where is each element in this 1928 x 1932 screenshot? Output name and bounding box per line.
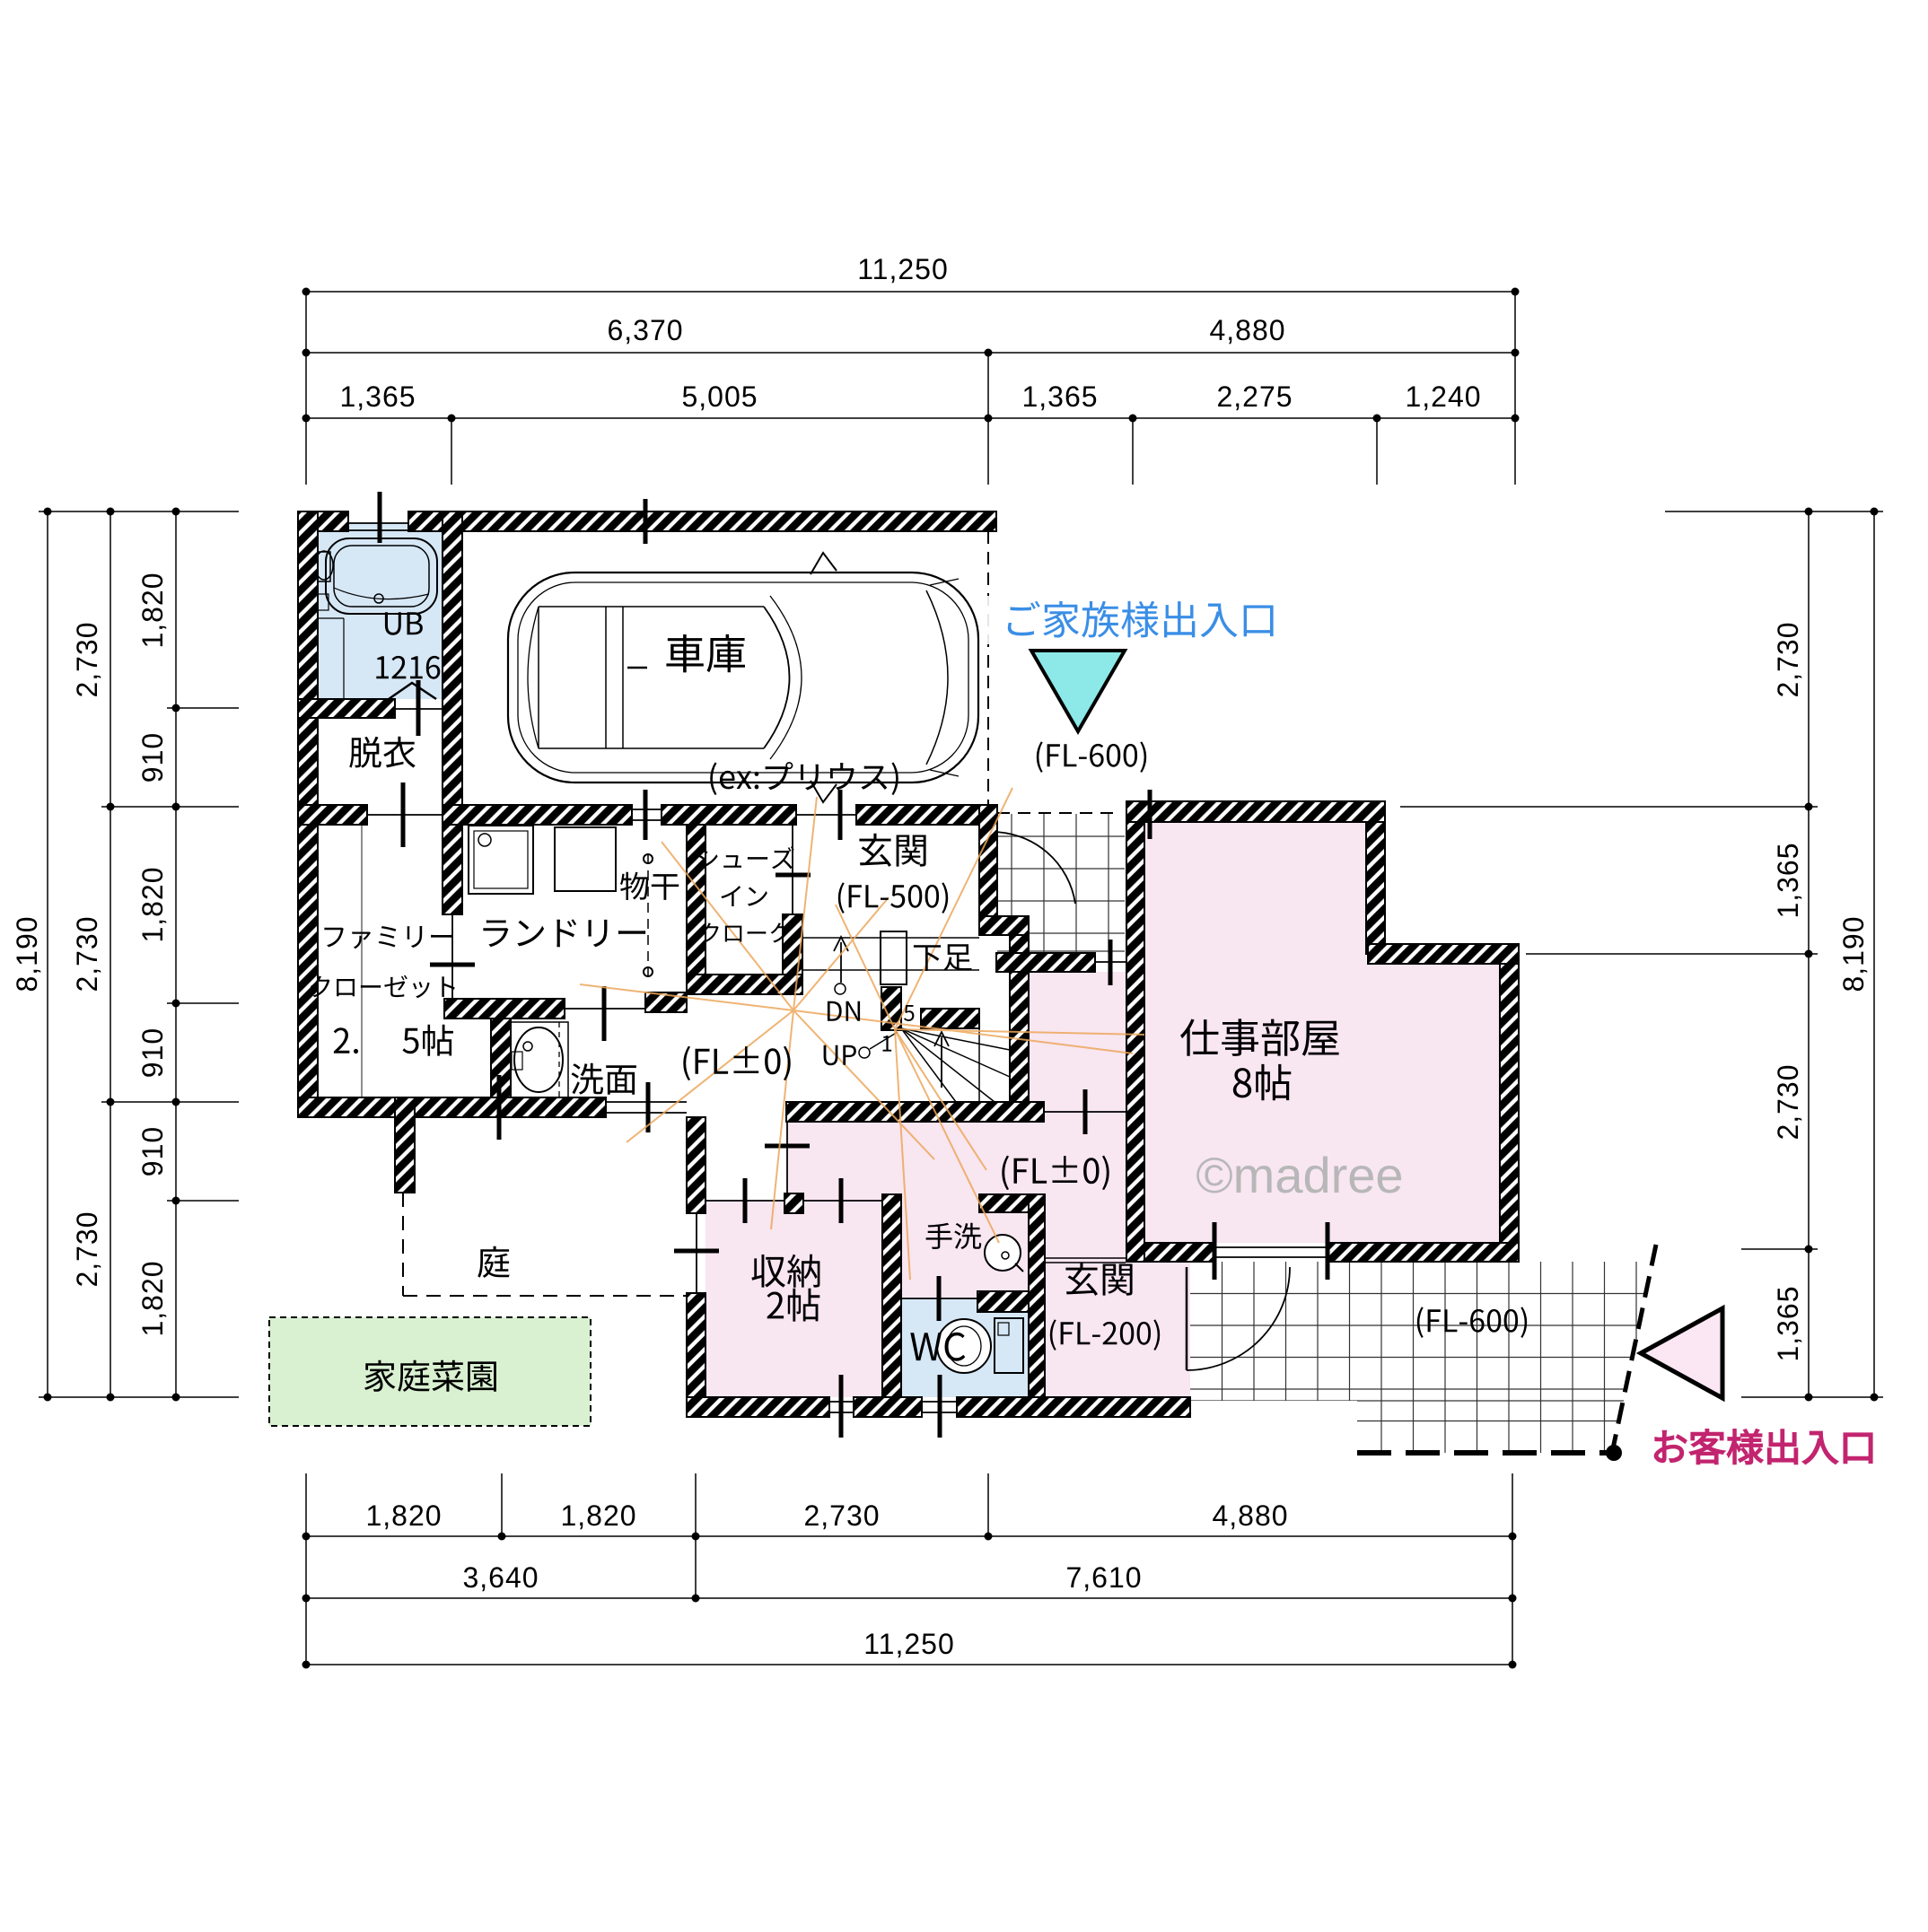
svg-text:6,370: 6,370 xyxy=(607,314,683,346)
svg-text:8,190: 8,190 xyxy=(1837,915,1870,992)
svg-text:11,250: 11,250 xyxy=(857,253,949,285)
svg-text:2,730: 2,730 xyxy=(71,1211,103,1287)
svg-text:1,820: 1,820 xyxy=(136,866,169,942)
svg-text:1,820: 1,820 xyxy=(365,1499,442,1532)
svg-text:2,730: 2,730 xyxy=(1772,1063,1804,1140)
svg-text:2,730: 2,730 xyxy=(1772,621,1804,697)
svg-text:1,365: 1,365 xyxy=(339,380,416,413)
svg-text:7,610: 7,610 xyxy=(1065,1561,1142,1594)
svg-text:910: 910 xyxy=(136,1027,169,1078)
svg-text:8,190: 8,190 xyxy=(11,915,43,992)
svg-text:©madree: ©madree xyxy=(1196,1147,1403,1203)
svg-text:910: 910 xyxy=(136,1126,169,1176)
svg-text:1,820: 1,820 xyxy=(136,1260,169,1336)
svg-text:11,250: 11,250 xyxy=(863,1628,955,1660)
svg-text:1,365: 1,365 xyxy=(1772,842,1804,918)
svg-text:910: 910 xyxy=(136,732,169,782)
svg-text:1,365: 1,365 xyxy=(1772,1285,1804,1361)
svg-text:2,275: 2,275 xyxy=(1216,380,1293,413)
svg-text:3,640: 3,640 xyxy=(462,1561,539,1594)
svg-text:1,820: 1,820 xyxy=(136,572,169,648)
svg-text:1,820: 1,820 xyxy=(560,1499,636,1532)
svg-text:4,880: 4,880 xyxy=(1209,314,1285,346)
svg-text:4,880: 4,880 xyxy=(1212,1499,1288,1532)
svg-text:2,730: 2,730 xyxy=(803,1499,880,1532)
svg-text:1,365: 1,365 xyxy=(1021,380,1098,413)
svg-text:1,240: 1,240 xyxy=(1405,380,1481,413)
svg-text:2,730: 2,730 xyxy=(71,915,103,992)
svg-text:5,005: 5,005 xyxy=(681,380,758,413)
svg-text:2,730: 2,730 xyxy=(71,621,103,697)
